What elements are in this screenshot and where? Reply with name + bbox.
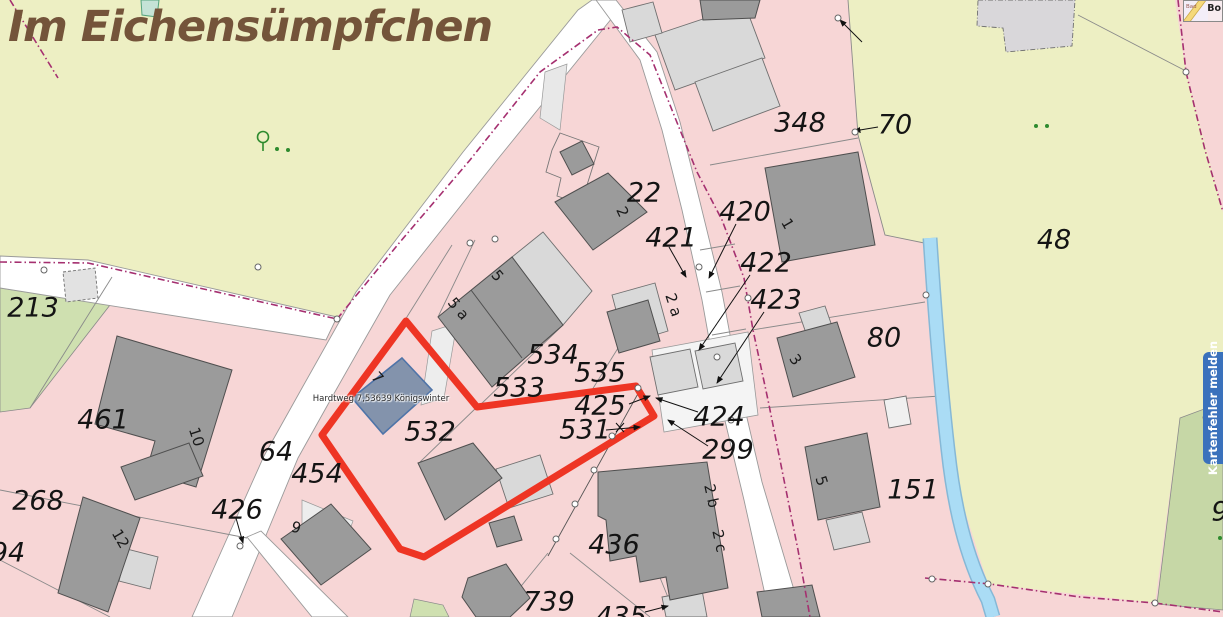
building-top <box>700 0 760 20</box>
minimap-label-bad: Bad <box>1186 4 1197 10</box>
map-viewport[interactable]: 3487048224214204224238021346164454426268… <box>0 0 1223 617</box>
overview-minimap[interactable]: Bad Bo <box>1183 0 1223 22</box>
map-canvas[interactable] <box>0 0 1223 617</box>
building-5-151 <box>805 433 880 520</box>
building-1 <box>765 152 875 262</box>
report-map-error-label: Kartenfehler melden <box>1206 341 1220 475</box>
minimap-label-bonn: Bo <box>1207 3 1221 14</box>
report-map-error-tab[interactable]: Kartenfehler melden <box>1203 352 1223 464</box>
selected-building-address: Hardtweg 7,53639 Königswinter <box>313 394 450 404</box>
field-name-title: Im Eichensümpfchen <box>8 2 492 52</box>
